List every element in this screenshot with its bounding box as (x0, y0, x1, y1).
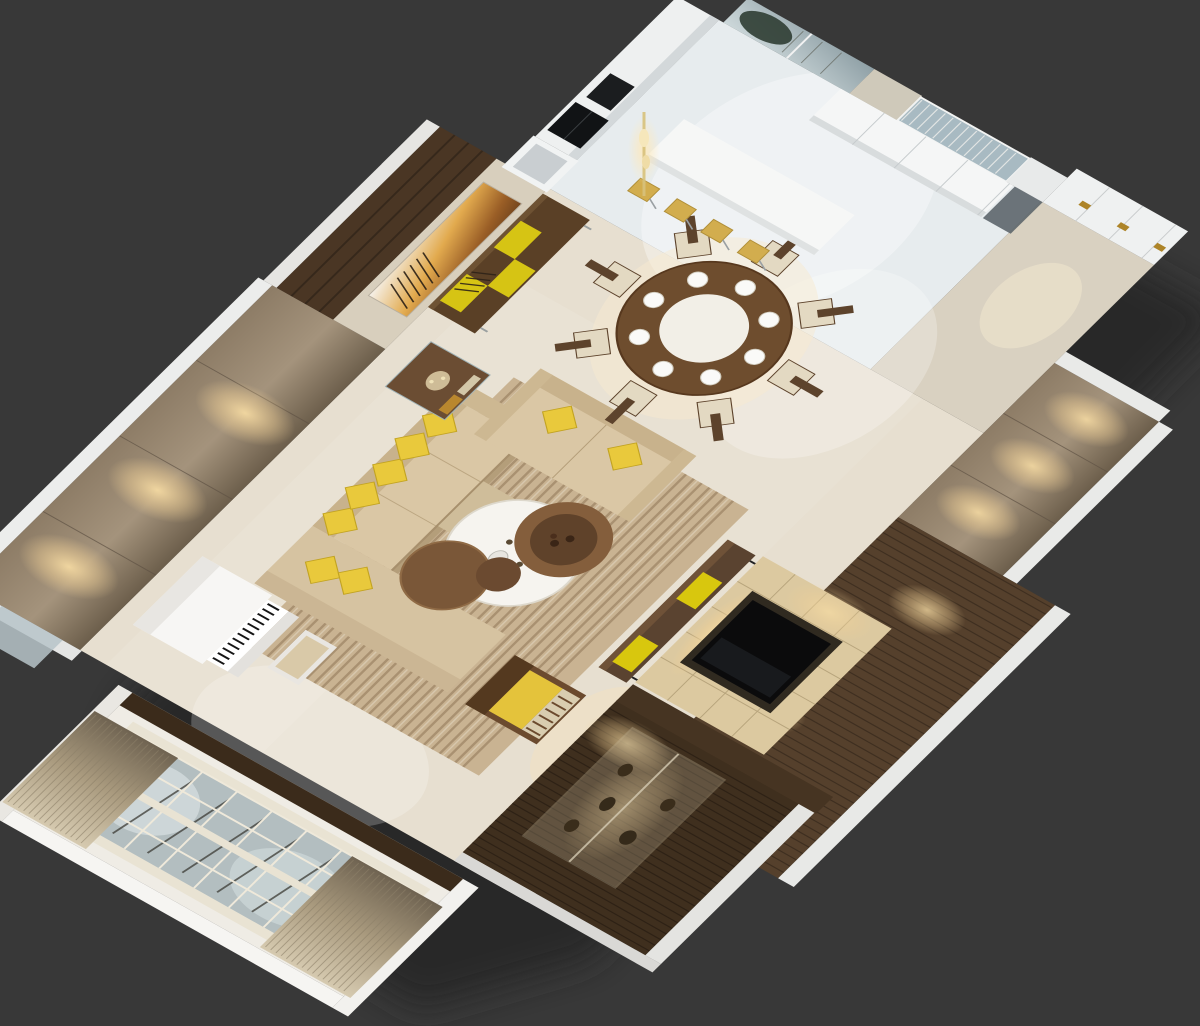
floor-lamp-sparkle (639, 129, 649, 147)
floor-lamp-sparkle (642, 155, 650, 169)
floorplan-stage (0, 0, 1200, 1026)
floorplan-render (0, 0, 1200, 1026)
